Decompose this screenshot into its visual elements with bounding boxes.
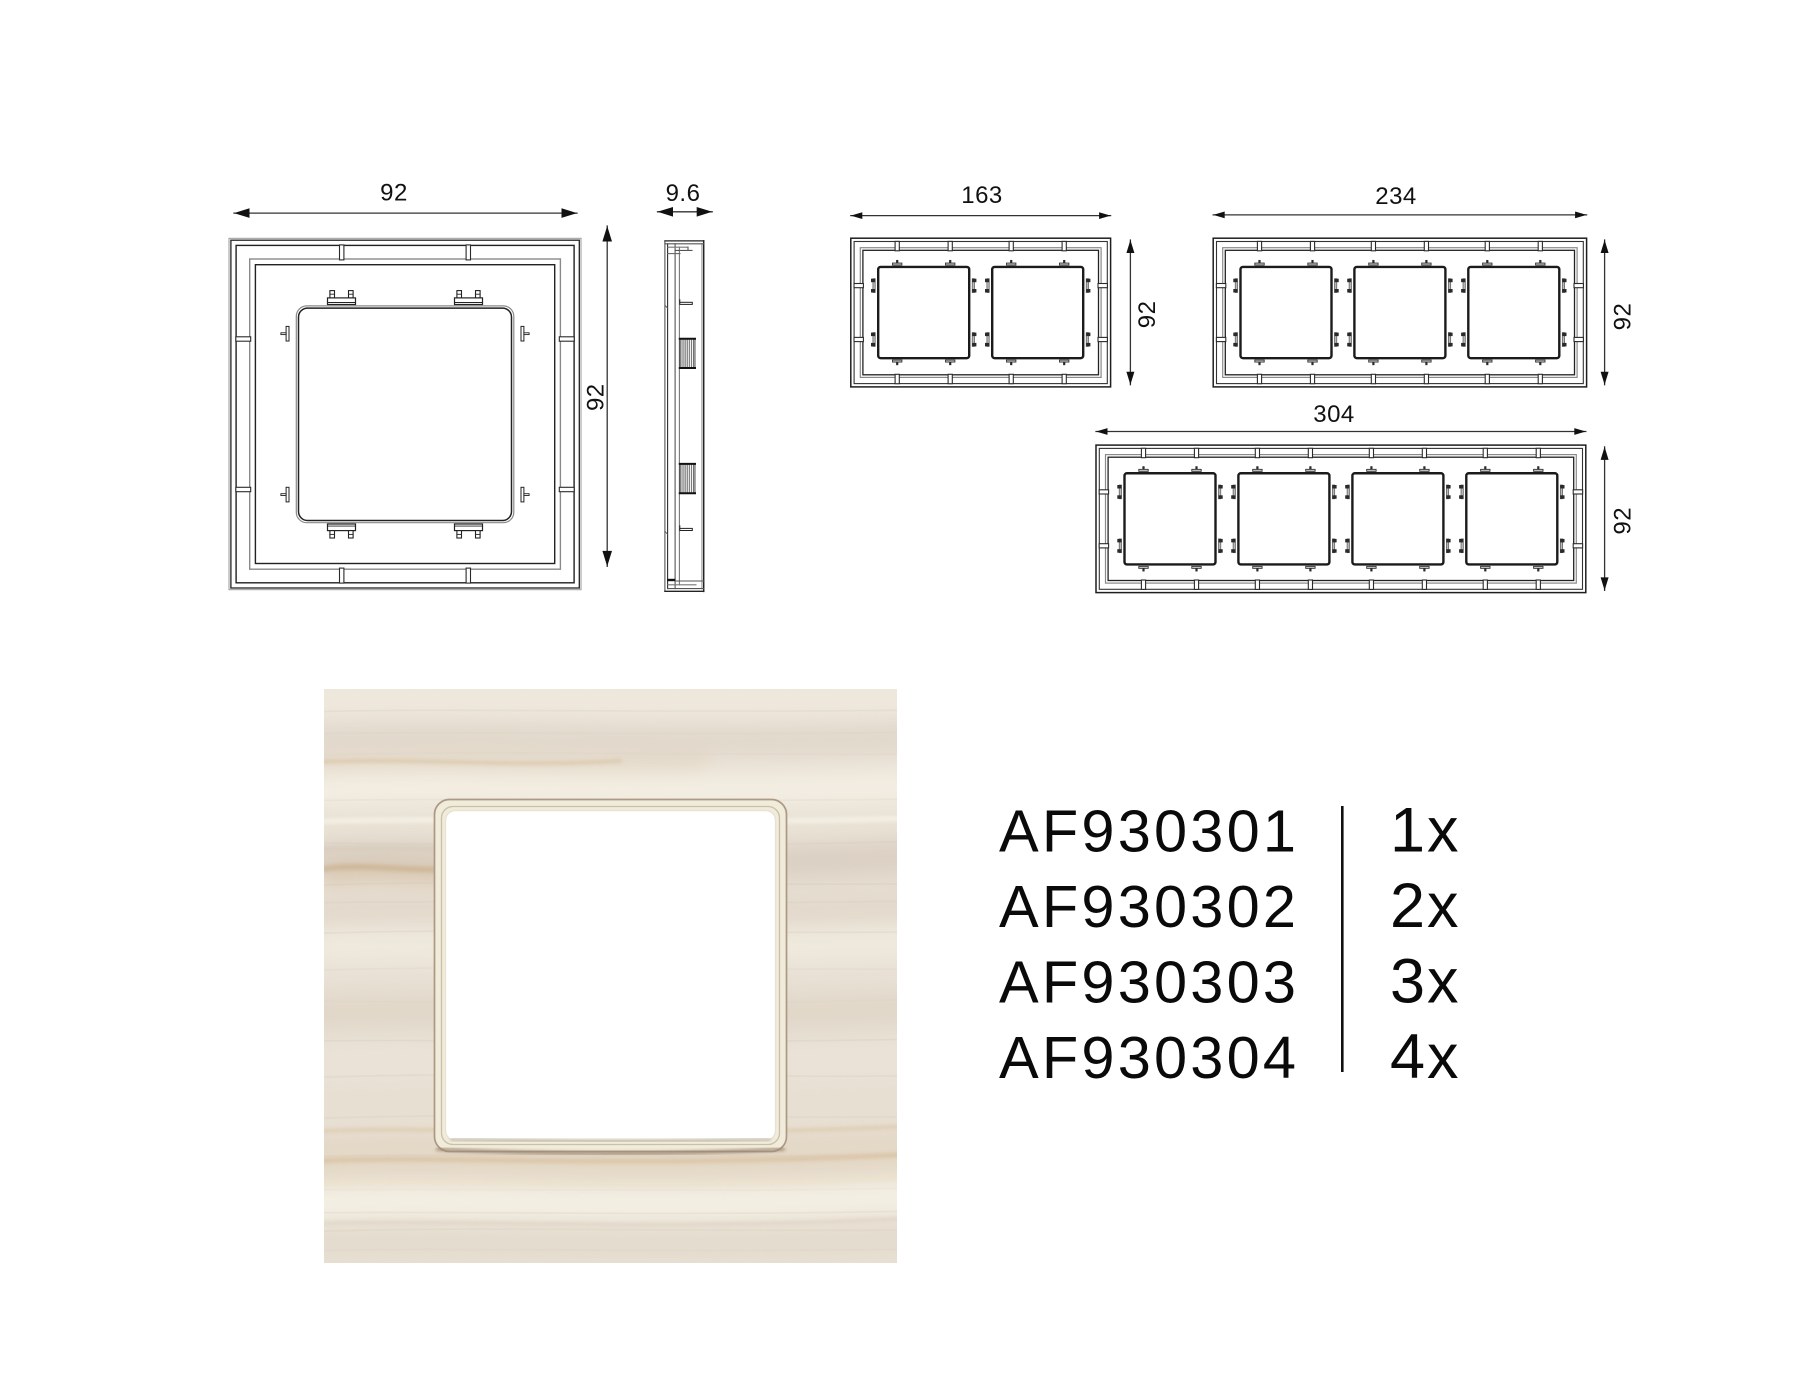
- svg-text:2x: 2x: [1390, 871, 1461, 941]
- svg-text:3x: 3x: [1390, 947, 1461, 1017]
- svg-text:92: 92: [1134, 301, 1161, 329]
- svg-text:304: 304: [1313, 401, 1355, 428]
- svg-text:9.6: 9.6: [666, 180, 701, 207]
- svg-text:92: 92: [1609, 507, 1636, 535]
- svg-text:AF930304: AF930304: [999, 1024, 1299, 1091]
- svg-text:92: 92: [582, 383, 609, 411]
- svg-text:AF930301: AF930301: [999, 798, 1299, 865]
- svg-text:92: 92: [380, 180, 408, 207]
- svg-text:AF930303: AF930303: [999, 949, 1299, 1016]
- svg-text:4x: 4x: [1390, 1022, 1461, 1092]
- svg-text:1x: 1x: [1390, 796, 1461, 866]
- svg-text:234: 234: [1375, 183, 1417, 210]
- svg-text:92: 92: [1610, 303, 1637, 331]
- svg-text:AF930302: AF930302: [999, 873, 1299, 940]
- svg-text:163: 163: [961, 182, 1003, 209]
